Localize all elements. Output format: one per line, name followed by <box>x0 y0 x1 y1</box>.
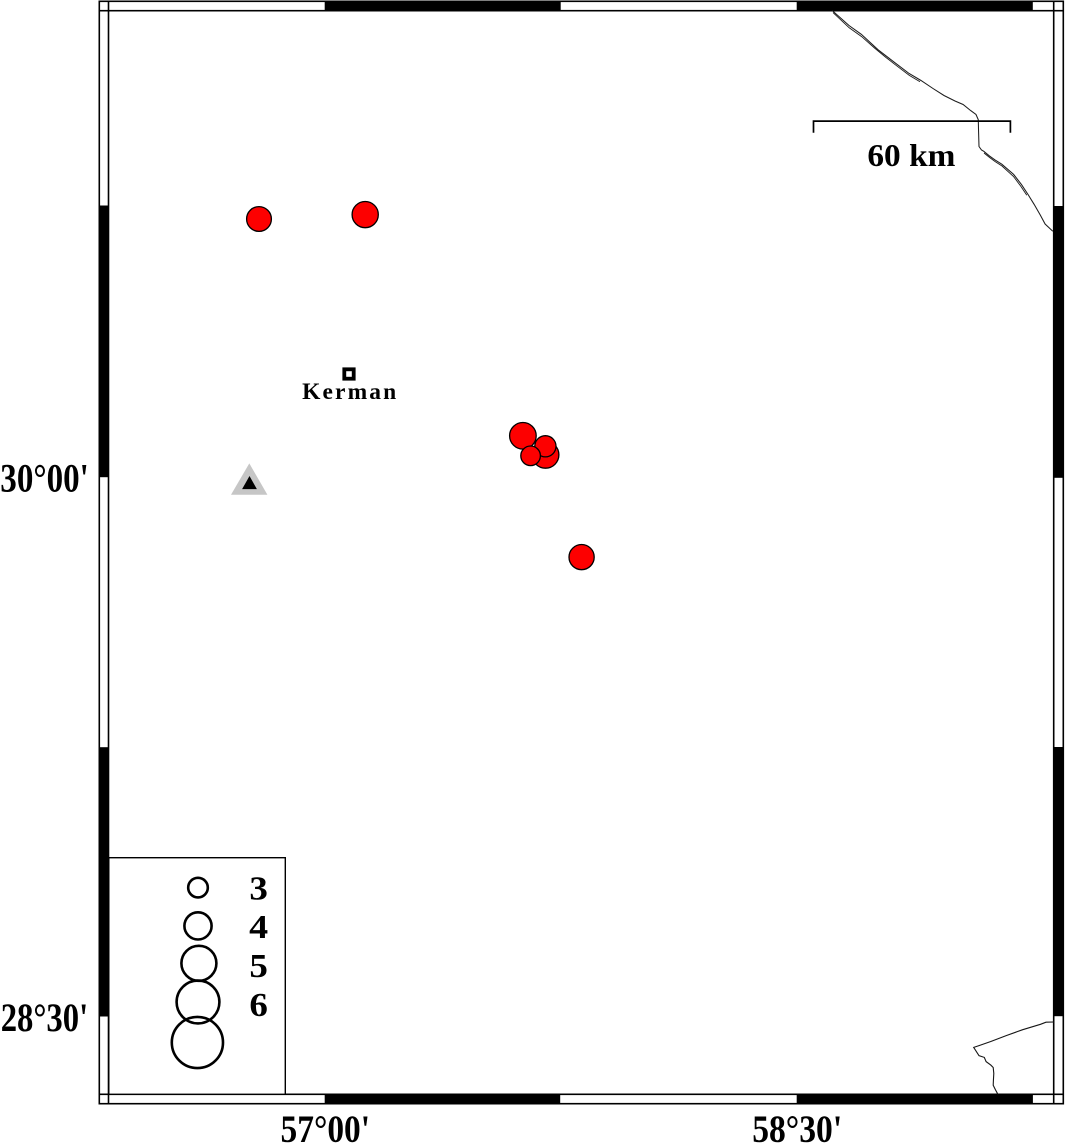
svg-text:60 km: 60 km <box>867 137 955 173</box>
svg-text:58°30': 58°30' <box>752 1107 842 1143</box>
svg-text:3: 3 <box>249 871 268 908</box>
svg-text:57°00': 57°00' <box>281 1107 371 1143</box>
svg-text:30°00': 30°00' <box>0 455 89 500</box>
svg-text:6: 6 <box>249 987 268 1024</box>
svg-text:28°30': 28°30' <box>1 995 89 1040</box>
svg-text:4: 4 <box>249 909 268 946</box>
svg-text:5: 5 <box>249 948 268 985</box>
svg-text:Kerman: Kerman <box>302 379 398 405</box>
